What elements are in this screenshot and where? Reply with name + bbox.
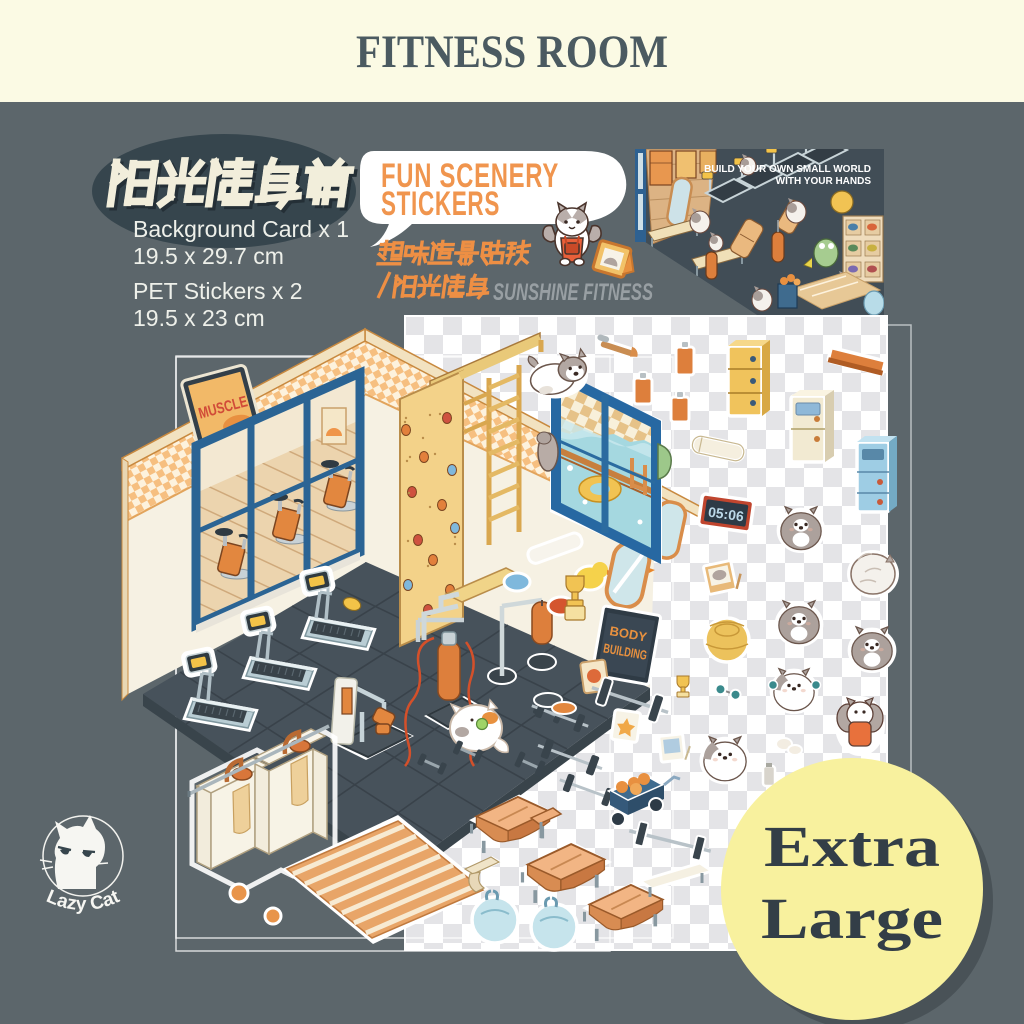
svg-text:FITNESS ROOM: FITNESS ROOM xyxy=(356,26,668,78)
svg-text:BUILD YOUR OWN SMALL WORLD: BUILD YOUR OWN SMALL WORLD xyxy=(704,164,871,175)
svg-text:WITH YOUR HANDS: WITH YOUR HANDS xyxy=(776,176,872,187)
svg-text:STICKERS: STICKERS xyxy=(381,185,500,223)
svg-text:Extra: Extra xyxy=(764,814,940,879)
svg-text:19.5 x 23 cm: 19.5 x 23 cm xyxy=(133,305,265,331)
svg-text:19.5 x 29.7 cm: 19.5 x 29.7 cm xyxy=(133,243,284,269)
svg-text:Background Card x 1: Background Card x 1 xyxy=(133,216,349,242)
svg-text:SUNSHINE FITNESS: SUNSHINE FITNESS xyxy=(493,279,653,306)
svg-text:PET Stickers x 2: PET Stickers x 2 xyxy=(133,278,303,304)
svg-text:Large: Large xyxy=(761,886,943,951)
